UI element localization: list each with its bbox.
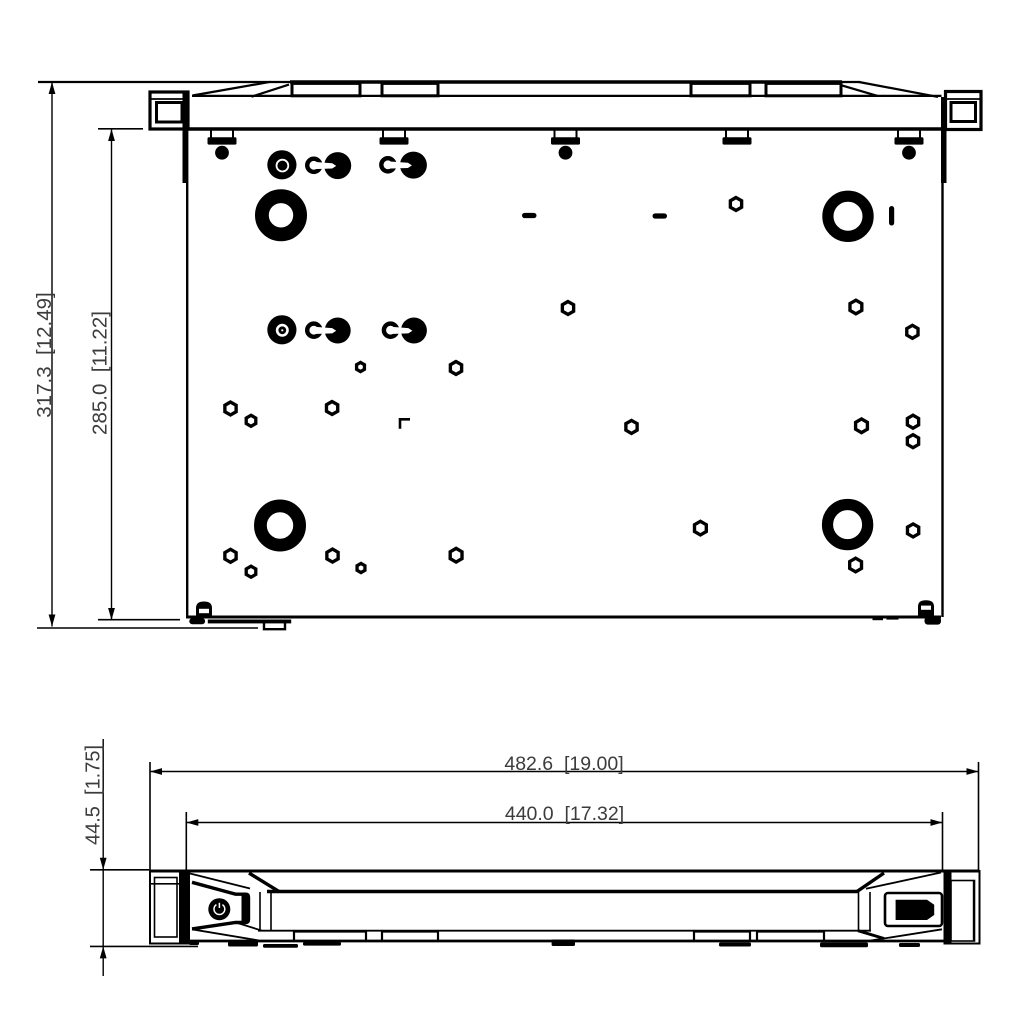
svg-text:285.0 [11.22]: 285.0 [11.22] bbox=[89, 311, 112, 435]
svg-text:44.5 [1.75]: 44.5 [1.75] bbox=[83, 745, 105, 845]
svg-text:317.3 [12.49]: 317.3 [12.49] bbox=[33, 292, 56, 417]
svg-text:440.0 [17.32]: 440.0 [17.32] bbox=[505, 803, 624, 825]
svg-text:482.6 [19.00]: 482.6 [19.00] bbox=[504, 753, 623, 775]
